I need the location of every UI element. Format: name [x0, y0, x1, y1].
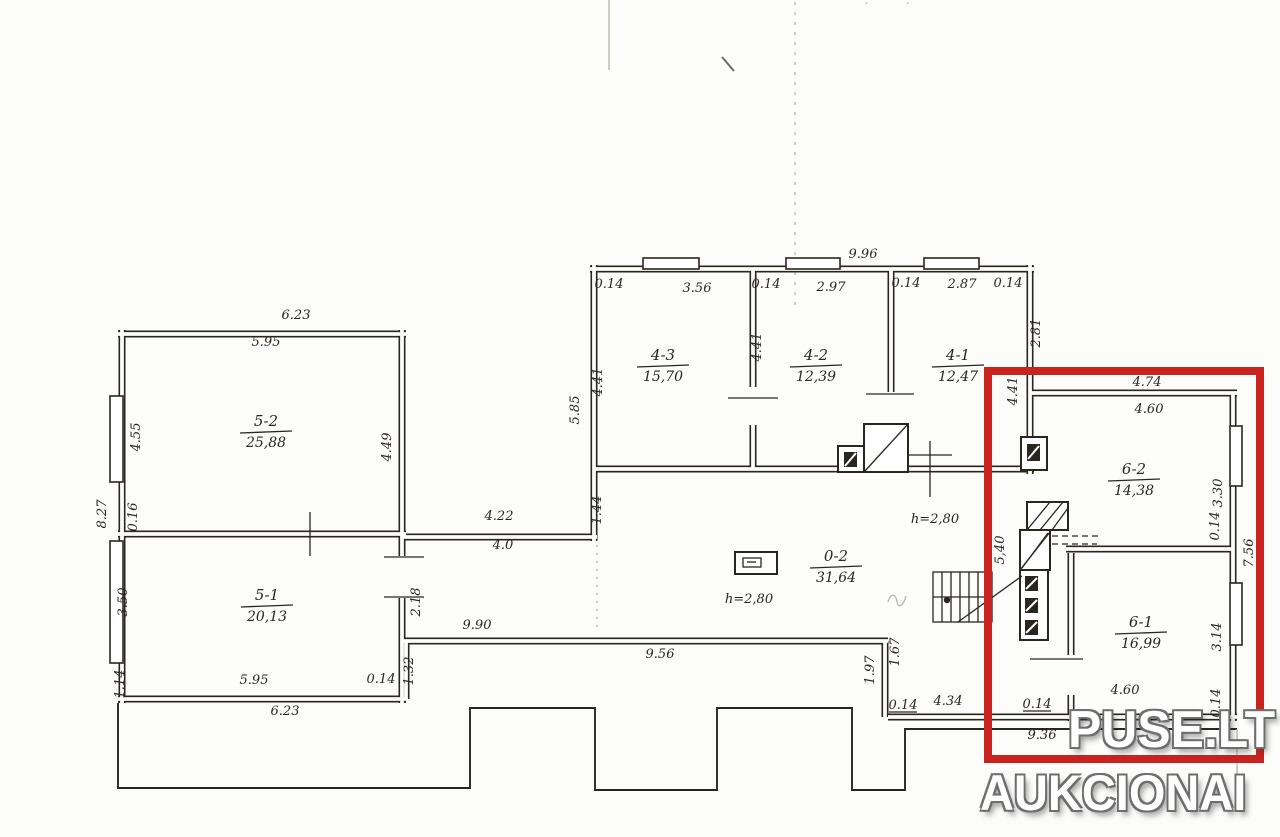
flue-symbols — [735, 424, 1068, 640]
dimension-label: 9.36 — [1028, 728, 1057, 743]
cut-off-handwriting: ''','' ''''','' '' — [852, 0, 962, 8]
fraction-bar — [932, 365, 984, 367]
dimension-label: 4.60 — [1134, 402, 1164, 417]
dimension-label: 1.97 — [863, 655, 878, 685]
dimension-label: 4.22 — [484, 509, 514, 524]
dimension-label: 0.16 — [126, 503, 141, 532]
room-number: 6-2 — [1122, 460, 1146, 478]
dimension-label: 1.14 — [113, 670, 128, 699]
fraction-bar — [637, 365, 689, 367]
dimension-label: 2.18 — [409, 588, 424, 618]
dimension-label: 9.56 — [646, 647, 675, 662]
dimension-label: 2.87 — [947, 277, 978, 292]
dimension-label: 2.81 — [1029, 319, 1044, 349]
dimension-label: 5.95 — [252, 335, 281, 350]
dimension-label: 3.30 — [1211, 479, 1226, 508]
fraction-bar — [1108, 479, 1160, 481]
dimension-label: 1.32 — [402, 657, 417, 686]
room-label-0-2: 0-231,64 — [810, 547, 862, 586]
dimension-label: 3.56 — [683, 281, 712, 296]
dimension-label: 0.14 — [595, 277, 624, 292]
dimension-label: 4.49 — [380, 433, 395, 463]
room-number: 6-1 — [1129, 613, 1153, 631]
watermark-aukcionai: AUKCIONAI — [980, 764, 1246, 822]
fraction-bar — [241, 605, 293, 607]
room-number: 5-1 — [255, 586, 279, 604]
room-area: 14,38 — [1114, 483, 1154, 499]
scan-crease-lines — [609, 0, 906, 606]
room-number: 4-2 — [803, 346, 828, 364]
door-openings — [310, 387, 1083, 695]
dimension-label: 5.85 — [568, 396, 583, 425]
dimension-label: 4.41 — [750, 333, 765, 363]
room-number: 4-1 — [945, 346, 970, 364]
fraction-bar — [240, 431, 292, 433]
fraction-bar — [790, 365, 842, 367]
dimension-label: 4.60 — [1110, 683, 1140, 698]
room-area: 16,99 — [1121, 636, 1161, 652]
dimension-label: 4.74 — [1132, 375, 1162, 390]
watermark-puse-lt: PUSE.LT — [1068, 700, 1275, 760]
walls — [118, 265, 1237, 721]
dimension-label: 4.34 — [933, 694, 963, 709]
room-area: 20,13 — [246, 609, 287, 625]
dimension-label: 1.67 — [888, 637, 903, 667]
dimension-label: 3.14 — [1210, 623, 1225, 652]
dimension-label: 5,40 — [993, 536, 1008, 565]
room-label-4-3: 4-315,70 — [637, 346, 689, 385]
room-label-6-2: 6-214,38 — [1108, 460, 1160, 499]
room-number: 5-2 — [254, 412, 278, 430]
dimension-label: 5.95 — [240, 673, 269, 688]
dimension-label: 8.27 — [95, 499, 110, 529]
room-area: 15,70 — [643, 369, 683, 385]
room-label-4-2: 4-212,39 — [790, 346, 842, 385]
dimension-label: 0.14 — [1208, 512, 1223, 541]
pen-mark — [722, 57, 734, 71]
dimension-label: 9.96 — [849, 247, 878, 262]
dimension-label: 4.55 — [129, 423, 144, 453]
room-label-5-2: 5-225,88 — [240, 412, 292, 451]
room-area: 12,47 — [938, 369, 978, 385]
dimension-label: 0.14 — [889, 698, 918, 713]
room-area: 25,88 — [245, 435, 286, 451]
fraction-bar — [1115, 632, 1167, 634]
dimension-label: 6.23 — [282, 308, 311, 323]
dimension-label: 0.14 — [367, 672, 396, 687]
dimension-label: 4.41 — [591, 368, 606, 398]
dimension-label: 6.23 — [271, 704, 300, 719]
dimension-label: 0.14 — [752, 277, 781, 292]
floor-plan-scan: 9.960.143.560.142.970.142.870.145.854.41… — [0, 0, 1280, 837]
room-number: 4-3 — [650, 346, 675, 364]
room-label-4-1: 4-112,47 — [932, 346, 984, 385]
dimension-label: 3.50 — [116, 588, 131, 617]
dimension-label: h=2,80 — [725, 592, 773, 607]
room-area: 12,39 — [796, 369, 836, 385]
room-number: 0-2 — [824, 547, 848, 565]
dimension-label: 0.14 — [892, 276, 921, 291]
dimension-label: 7.56 — [1242, 539, 1257, 568]
dimension-label: 4.41 — [1006, 377, 1021, 407]
dimension-label: 2.97 — [816, 280, 847, 295]
smudge-mark — [888, 595, 906, 606]
dimension-label: 4.0 — [492, 538, 514, 553]
room-label-6-1: 6-116,99 — [1115, 613, 1167, 652]
dimension-label: 0.14 — [1023, 697, 1052, 712]
dimension-labels: 9.960.143.560.142.970.142.870.145.854.41… — [95, 247, 1257, 743]
fraction-bar — [810, 566, 862, 568]
room-label-5-1: 5-120,13 — [241, 586, 293, 625]
dimension-label: 0.14 — [994, 276, 1023, 291]
dimension-label: 9.90 — [463, 618, 492, 633]
dimension-label: h=2,80 — [911, 512, 959, 527]
stove-symbol — [735, 552, 777, 574]
dimension-label: 1.44 — [590, 496, 605, 525]
room-area: 31,64 — [816, 570, 856, 586]
